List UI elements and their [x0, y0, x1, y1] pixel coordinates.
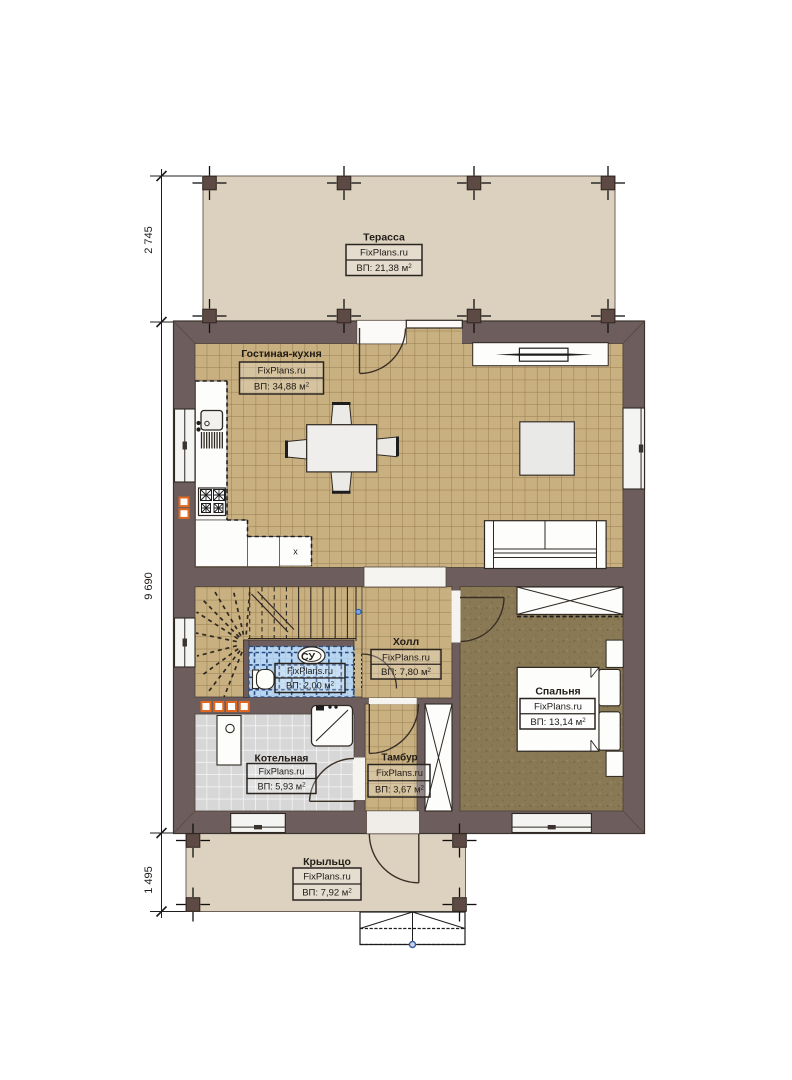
svg-text:1 495: 1 495 — [143, 866, 155, 894]
svg-text:ВП: 34,88 м2: ВП: 34,88 м2 — [254, 381, 310, 392]
svg-text:Гостиная-кухня: Гостиная-кухня — [241, 348, 321, 360]
svg-text:ВП: 5,93 м2: ВП: 5,93 м2 — [257, 781, 306, 791]
svg-text:Терасса: Терасса — [363, 232, 405, 244]
svg-text:СУ: СУ — [301, 651, 315, 663]
svg-text:FixPlans.ru: FixPlans.ru — [382, 652, 430, 663]
svg-text:Холл: Холл — [393, 636, 419, 648]
svg-text:FixPlans.ru: FixPlans.ru — [258, 365, 306, 376]
svg-text:ВП: 3,67 м2: ВП: 3,67 м2 — [375, 783, 425, 794]
svg-text:Спальня: Спальня — [535, 686, 580, 698]
svg-text:FixPlans.ru: FixPlans.ru — [360, 248, 408, 259]
svg-text:ВП: 13,14 м2: ВП: 13,14 м2 — [530, 717, 586, 728]
svg-text:ВП: 7,80 м2: ВП: 7,80 м2 — [381, 667, 432, 678]
svg-text:ВП: 7,92 м2: ВП: 7,92 м2 — [302, 887, 352, 898]
svg-text:x: x — [293, 547, 298, 557]
svg-text:FixPlans.ru: FixPlans.ru — [303, 871, 351, 882]
svg-text:Крыльцо: Крыльцо — [303, 856, 351, 868]
svg-text:FixPlans.ru: FixPlans.ru — [376, 767, 423, 778]
svg-text:2 745: 2 745 — [143, 226, 155, 254]
svg-text:ВП: 2,00 м2: ВП: 2,00 м2 — [286, 681, 335, 691]
svg-text:FixPlans.ru: FixPlans.ru — [259, 766, 305, 776]
svg-text:FixPlans.ru: FixPlans.ru — [534, 702, 582, 713]
svg-text:FixPlans.ru: FixPlans.ru — [287, 666, 333, 676]
svg-text:9 690: 9 690 — [143, 572, 155, 600]
svg-text:Тамбур: Тамбур — [381, 752, 417, 764]
svg-text:ВП: 21,38 м2: ВП: 21,38 м2 — [356, 263, 412, 274]
